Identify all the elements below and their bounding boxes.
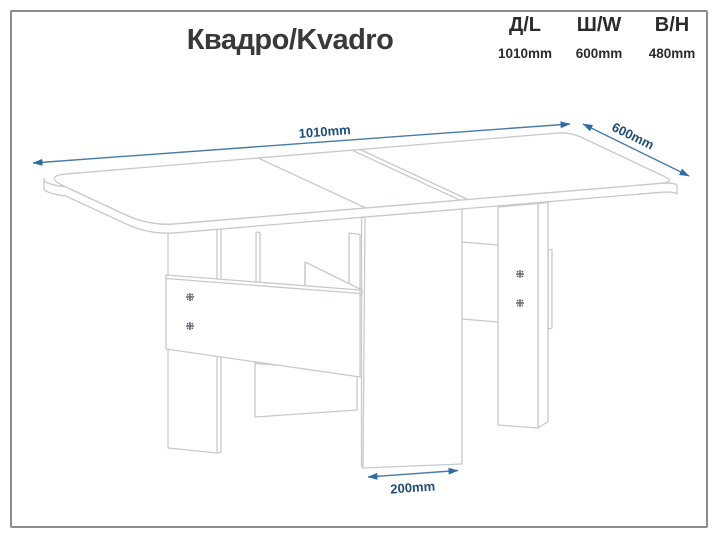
screw-icon: [516, 270, 524, 278]
center-support-panel: [362, 209, 463, 468]
dim-length-label: 1010mm: [298, 122, 351, 141]
dim-base-width: 200mm: [368, 471, 458, 497]
rear-left-leg: [256, 232, 260, 284]
dim-base-width-label: 200mm: [390, 478, 436, 496]
dim-depth-label: 600mm: [610, 119, 657, 152]
screw-icon: [186, 293, 194, 301]
right-leg: [498, 203, 548, 429]
right-cross-panel: [462, 242, 498, 322]
table-drawing: 1010mm 600mm 200mm: [0, 0, 720, 540]
screw-icon: [186, 322, 194, 330]
diagram-page: Квадро/Kvadro Д/L 1010mm Ш/W 600mm В/H 4…: [0, 0, 720, 540]
screw-icon: [516, 299, 524, 307]
